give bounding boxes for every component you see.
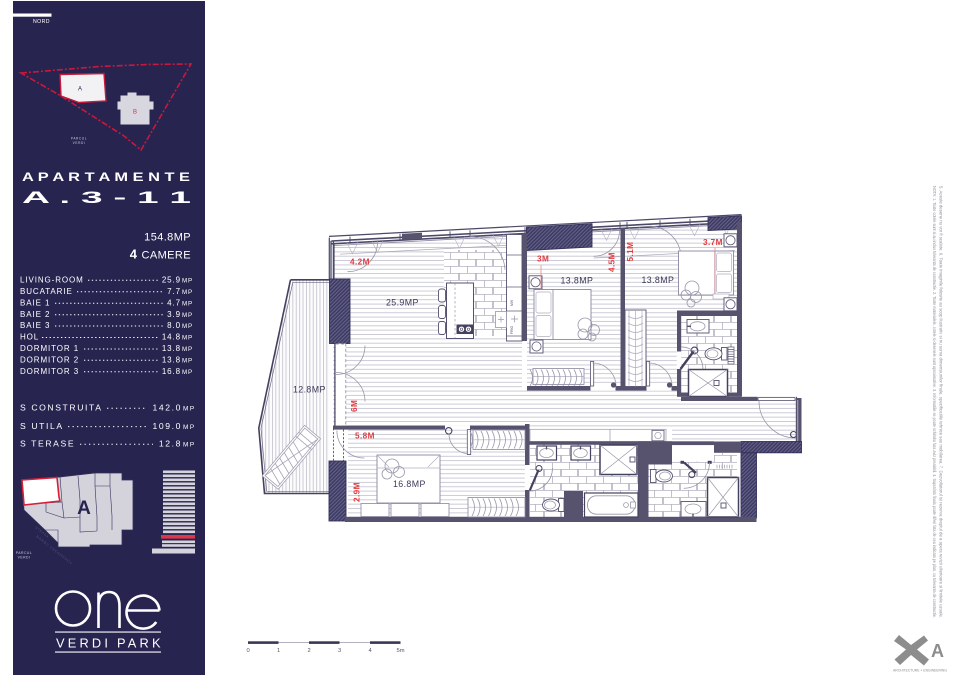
svg-text:0: 0 xyxy=(247,648,250,654)
svg-text:MP: MP xyxy=(182,323,193,330)
svg-text:154.8MP: 154.8MP xyxy=(144,232,191,244)
svg-text:MP: MP xyxy=(183,442,196,449)
svg-text:MP: MP xyxy=(182,369,193,376)
svg-text:S CONSTRUITA: S CONSTRUITA xyxy=(20,403,103,413)
svg-text:4: 4 xyxy=(130,247,138,262)
svg-text:A: A xyxy=(78,87,82,93)
svg-text:13.8: 13.8 xyxy=(162,344,181,353)
svg-text:VERDI: VERDI xyxy=(73,141,86,145)
svg-text:PARCUL: PARCUL xyxy=(16,551,33,555)
svg-text:109.0: 109.0 xyxy=(152,421,182,431)
svg-text:A P A R T A M E N T E: A P A R T A M E N T E xyxy=(22,172,190,184)
svg-text:CAMERE: CAMERE xyxy=(142,250,191,262)
svg-text:MP: MP xyxy=(183,406,196,413)
svg-text:BAIE 2: BAIE 2 xyxy=(20,310,50,319)
svg-text:NOTA: 1. Toate cotele sunt si: NOTA: 1. Toate cotele sunt si au inclus … xyxy=(932,186,937,618)
svg-text:S TERASE: S TERASE xyxy=(20,439,75,449)
svg-text:5. Aceste desene nu vor fi sca: 5. Aceste desene nu vor fi scalate. 6. T… xyxy=(939,186,944,618)
svg-text:13.8: 13.8 xyxy=(162,356,181,365)
svg-text:A: A xyxy=(931,641,944,661)
svg-text:7.7: 7.7 xyxy=(167,287,181,296)
svg-text:13.8MP: 13.8MP xyxy=(642,275,675,285)
svg-text:25.9MP: 25.9MP xyxy=(386,297,419,307)
svg-text:MW: MW xyxy=(510,299,514,306)
svg-text:14.8: 14.8 xyxy=(162,333,181,342)
svg-text:MP: MP xyxy=(182,358,193,365)
svg-text:2: 2 xyxy=(308,648,311,654)
svg-text:DORMITOR 1: DORMITOR 1 xyxy=(20,344,79,353)
svg-text:4.2M: 4.2M xyxy=(350,258,370,267)
svg-text:B: B xyxy=(133,110,137,116)
svg-text:S UTILA: S UTILA xyxy=(20,421,64,431)
svg-text:8.0: 8.0 xyxy=(167,321,181,330)
svg-text:HOL: HOL xyxy=(20,333,39,342)
svg-text:2.9M: 2.9M xyxy=(353,482,362,502)
svg-text:1: 1 xyxy=(277,648,280,654)
svg-text:5.1M: 5.1M xyxy=(626,242,635,262)
svg-text:5.8M: 5.8M xyxy=(355,431,375,440)
svg-text:DORMITOR 2: DORMITOR 2 xyxy=(20,356,79,365)
svg-text:MP: MP xyxy=(182,278,193,285)
svg-text:NORD: NORD xyxy=(33,19,50,25)
svg-text:A . 3 - 1 1: A . 3 - 1 1 xyxy=(22,188,191,207)
svg-text:3.7M: 3.7M xyxy=(703,238,723,247)
svg-text:4.5M: 4.5M xyxy=(608,252,617,272)
svg-text:MP: MP xyxy=(182,335,193,342)
svg-text:VERDI: VERDI xyxy=(18,556,31,560)
svg-text:MP: MP xyxy=(182,289,193,296)
svg-text:MP: MP xyxy=(182,312,193,319)
svg-text:13.8MP: 13.8MP xyxy=(561,276,594,286)
svg-text:16.8: 16.8 xyxy=(162,367,181,376)
svg-text:VERDI: VERDI xyxy=(56,636,111,651)
svg-text:A: A xyxy=(77,498,91,519)
svg-text:12.8: 12.8 xyxy=(159,439,182,449)
svg-text:142.0: 142.0 xyxy=(152,403,182,413)
svg-text:BAIE 1: BAIE 1 xyxy=(20,298,50,307)
svg-text:5m: 5m xyxy=(397,648,405,654)
svg-text:MP: MP xyxy=(182,300,193,307)
svg-text:25.9: 25.9 xyxy=(162,276,181,285)
svg-text:MP: MP xyxy=(183,424,196,431)
svg-text:PARK: PARK xyxy=(117,636,164,651)
svg-text:3M: 3M xyxy=(537,255,549,264)
svg-text:16.8MP: 16.8MP xyxy=(393,479,426,489)
svg-text:3.9: 3.9 xyxy=(167,310,181,319)
svg-text:3: 3 xyxy=(338,648,341,654)
svg-text:BUCATARIE: BUCATARIE xyxy=(20,287,73,296)
svg-text:4.7: 4.7 xyxy=(167,298,181,307)
svg-text:MP: MP xyxy=(182,346,193,353)
svg-text:12.8MP: 12.8MP xyxy=(293,384,326,394)
svg-text:BAIE 3: BAIE 3 xyxy=(20,321,50,330)
svg-text:DORMITOR 3: DORMITOR 3 xyxy=(20,367,79,376)
svg-text:LIVING-ROOM: LIVING-ROOM xyxy=(20,276,84,285)
svg-text:6M: 6M xyxy=(350,400,359,412)
svg-text:ARCHITECTURE + ENGINEERING: ARCHITECTURE + ENGINEERING xyxy=(893,669,947,673)
svg-text:FRIG: FRIG xyxy=(510,326,514,334)
